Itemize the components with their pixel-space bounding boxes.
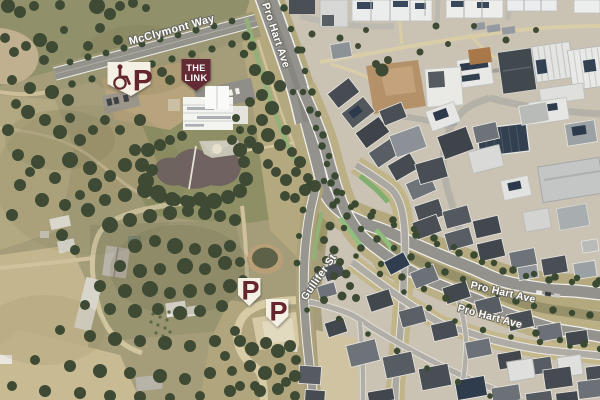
svg-text:P: P — [242, 276, 260, 306]
svg-text:P: P — [270, 297, 288, 327]
svg-text:LINK: LINK — [184, 73, 207, 83]
svg-text:THE: THE — [186, 63, 206, 73]
svg-text:P: P — [133, 65, 153, 98]
